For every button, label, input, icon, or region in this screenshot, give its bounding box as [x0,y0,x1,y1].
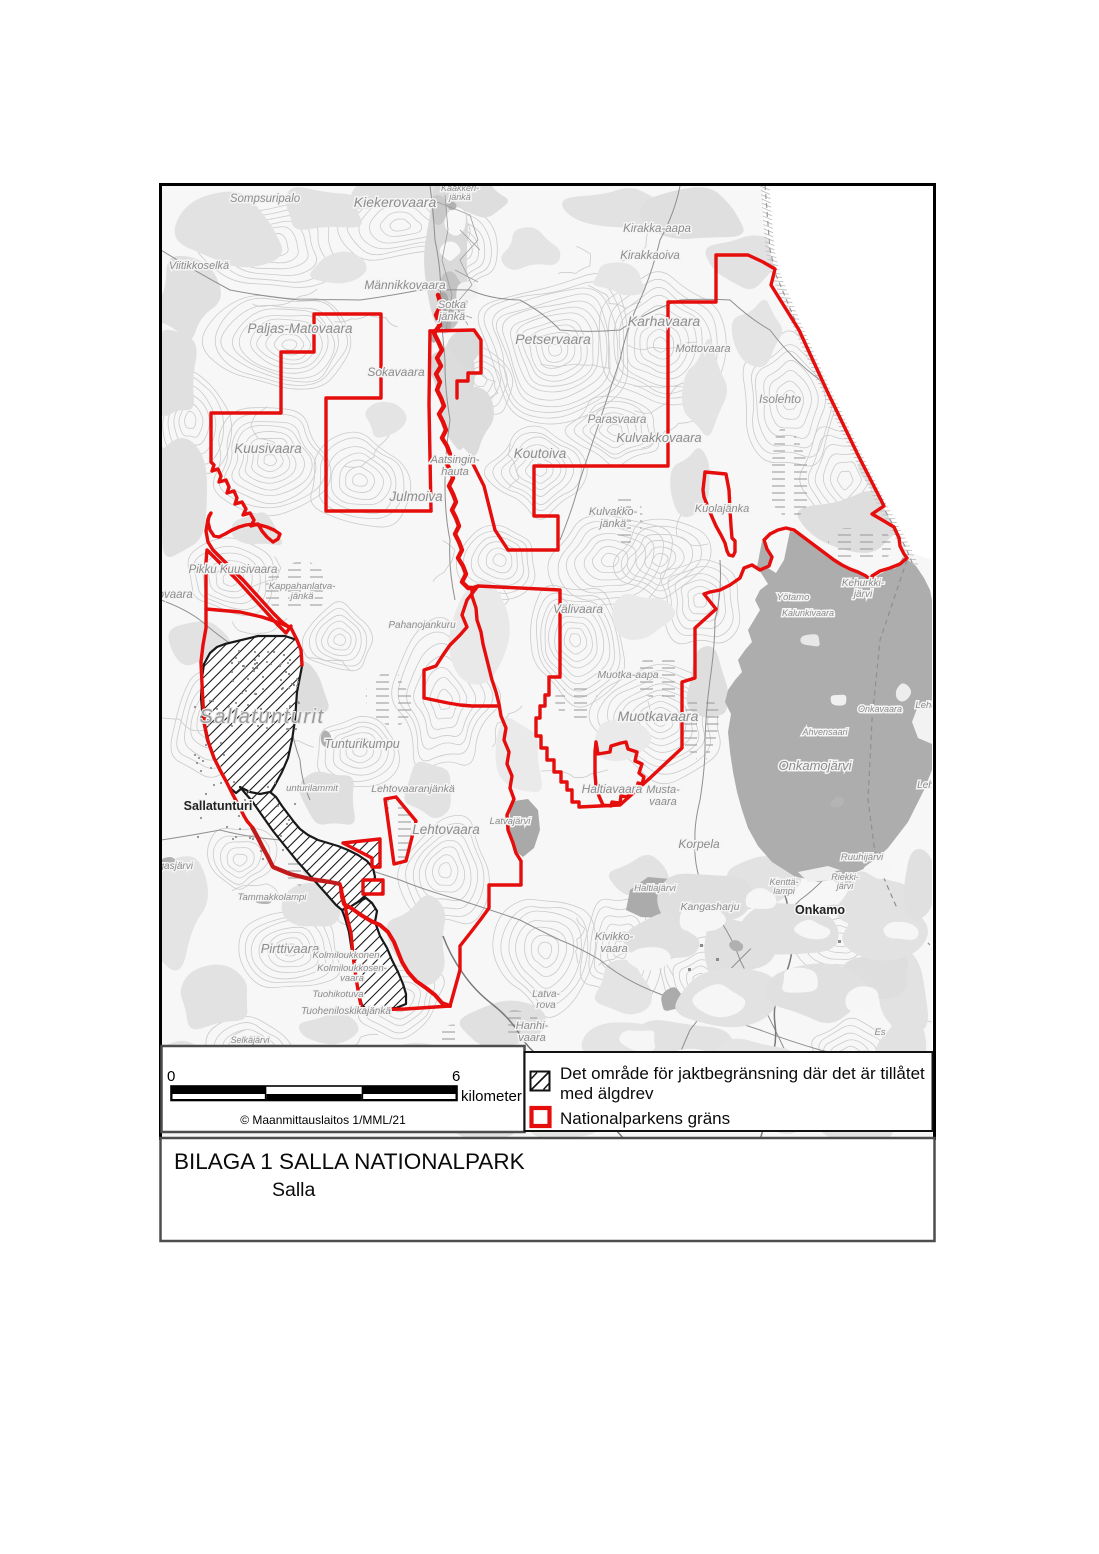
svg-text:Kulvakkovaara: Kulvakkovaara [616,430,701,445]
svg-text:Kulvakko-: Kulvakko- [589,506,638,518]
svg-text:järvi: järvi [836,881,855,891]
svg-text:Tunturikumpu: Tunturikumpu [324,737,400,751]
svg-text:Viitikkoselkä: Viitikkoselkä [169,260,229,272]
svg-text:Sokavaara: Sokavaara [367,365,425,379]
svg-text:Kehurkki-: Kehurkki- [842,578,885,589]
svg-text:Lehtovaaranjänkä: Lehtovaaranjänkä [371,783,455,795]
svg-text:Karhavaara: Karhavaara [628,313,701,329]
svg-text:Lehtovaara: Lehtovaara [412,822,480,837]
svg-text:Haltiavaara: Haltiavaara [582,782,643,796]
svg-text:Kivikko-: Kivikko- [595,931,634,943]
svg-text:Kirakka-aapa: Kirakka-aapa [623,223,691,235]
svg-text:Ruuhijärvi: Ruuhijärvi [841,852,884,863]
svg-text:unturilammit: unturilammit [286,783,338,794]
svg-text:vaara: vaara [518,1032,546,1044]
svg-text:Onkamo: Onkamo [795,903,845,917]
svg-text:Selkäjärvi: Selkäjärvi [230,1035,270,1045]
svg-text:Parasvaara: Parasvaara [588,414,647,426]
svg-text:Sotka: Sotka [438,299,466,311]
svg-text:Julmoiva: Julmoiva [388,489,443,504]
svg-text:Tuoheniloskikajänkä: Tuoheniloskikajänkä [301,1006,391,1017]
svg-text:Det område för jaktbegränsning: Det område för jaktbegränsning där det ä… [560,1064,925,1083]
svg-text:Kuusivaara: Kuusivaara [234,441,302,456]
svg-text:med älgdrev: med älgdrev [560,1084,654,1103]
svg-text:Nationalparkens gräns: Nationalparkens gräns [560,1109,730,1128]
svg-text:Välivaara: Välivaara [553,602,603,616]
svg-text:Salla: Salla [272,1179,316,1201]
svg-text:Kolmiloukkonen: Kolmiloukkonen [312,950,379,961]
svg-text:Haltiajärvi: Haltiajärvi [634,883,677,894]
svg-text:6: 6 [452,1068,460,1085]
svg-text:jänkä: jänkä [598,518,626,530]
svg-text:Es: Es [874,1027,885,1038]
svg-text:Onkavaara: Onkavaara [858,704,902,714]
svg-text:Männikkovaara: Männikkovaara [364,278,446,292]
svg-text:Sallatunturit: Sallatunturit [199,706,324,728]
svg-text:kilometer: kilometer [461,1088,522,1105]
svg-text:lampi: lampi [773,886,796,896]
svg-text:Tammakkolampi: Tammakkolampi [238,892,308,903]
svg-text:Pirttivaara: Pirttivaara [261,941,320,956]
svg-text:rova: rova [536,1000,556,1011]
svg-text:Onkamojärvi: Onkamojärvi [779,758,853,773]
svg-text:Hanhi-: Hanhi- [516,1020,549,1032]
svg-text:© Maanmittauslaitos 1/MML/21: © Maanmittauslaitos 1/MML/21 [240,1113,406,1127]
svg-text:Muotkavaara: Muotkavaara [618,708,699,724]
svg-text:Musta-: Musta- [646,784,680,796]
svg-text:Latvajärvi: Latvajärvi [490,816,532,827]
svg-text:Kalunkivaara: Kalunkivaara [782,608,834,618]
svg-text:Ahvensaari: Ahvensaari [801,727,848,737]
svg-text:Latva-: Latva- [532,989,560,1000]
svg-text:Muotka-aapa: Muotka-aapa [597,669,658,681]
svg-text:järvi: järvi [852,589,873,600]
svg-text:Sompsuripalo: Sompsuripalo [230,193,301,205]
svg-text:jänkä: jänkä [448,192,471,202]
svg-text:vaara: vaara [600,943,628,955]
svg-text:jänkä: jänkä [437,311,465,323]
svg-text:Paljas-Matovaara: Paljas-Matovaara [247,321,353,336]
svg-text:Pikku Kuusivaara: Pikku Kuusivaara [189,564,278,576]
svg-text:Isolehto: Isolehto [759,392,801,406]
svg-text:vaara: vaara [340,973,364,984]
svg-text:Pahanojankuru: Pahanojankuru [388,620,456,631]
svg-text:Aatsingin-: Aatsingin- [430,454,480,466]
svg-text:Kuolajänka: Kuolajänka [695,503,749,515]
svg-text:Mottovaara: Mottovaara [675,343,730,355]
svg-text:0: 0 [167,1068,175,1085]
svg-text:jänkä: jänkä [289,591,314,602]
svg-text:Kiekerovaara: Kiekerovaara [354,194,437,210]
svg-text:Korpela: Korpela [678,837,720,851]
svg-text:hauta: hauta [441,466,469,478]
svg-text:BILAGA 1 SALLA NATIONALPARK: BILAGA 1 SALLA NATIONALPARK [174,1149,525,1174]
svg-text:Yötamo: Yötamo [777,592,810,603]
svg-text:Kangasharju: Kangasharju [681,901,740,913]
svg-text:Kirakkaoiva: Kirakkaoiva [620,250,679,262]
svg-text:vaara: vaara [649,796,677,808]
svg-text:Petservaara: Petservaara [515,331,591,347]
svg-text:Sallatunturi: Sallatunturi [184,799,253,813]
svg-text:Koutoiva: Koutoiva [514,446,567,461]
svg-text:Tuohikotuva: Tuohikotuva [312,989,363,1000]
